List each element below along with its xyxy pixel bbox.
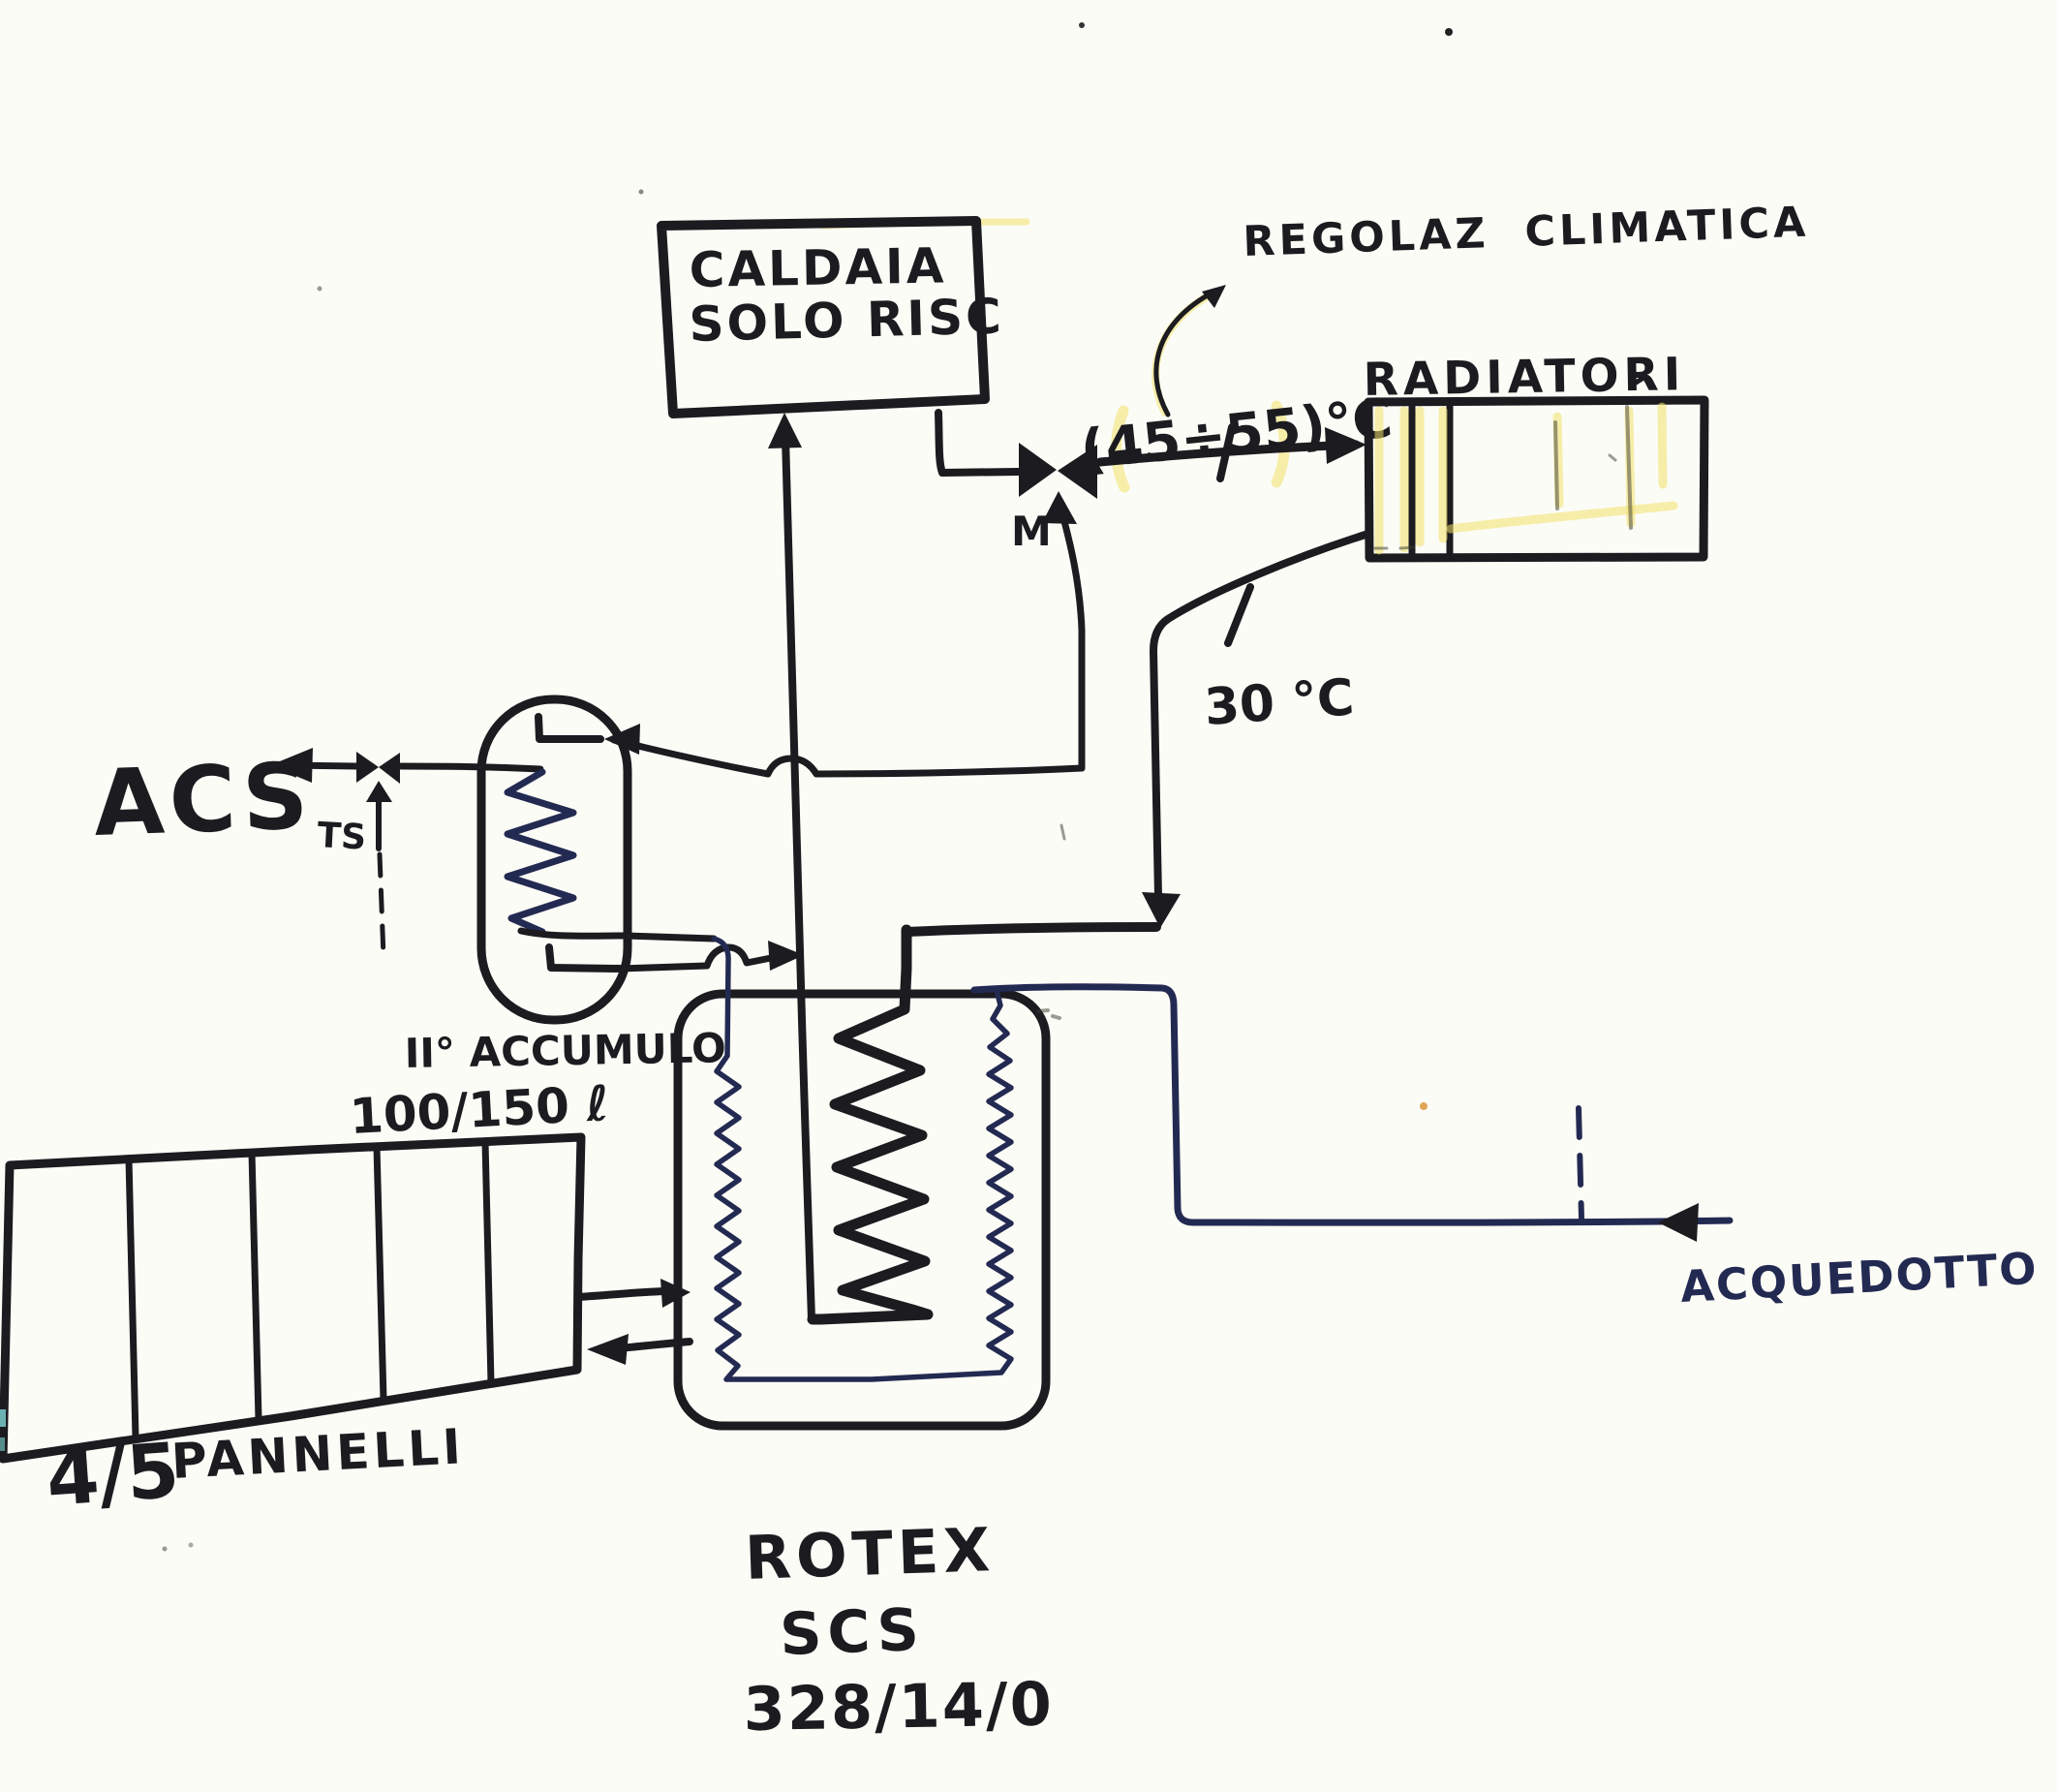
boiler-box: CALDAIA SOLO RISC: [661, 221, 1005, 414]
climate-regulation-label: REGOLAZ CLIMATICA: [1243, 199, 1810, 266]
ts-valve-left-triangle-icon: [356, 752, 379, 783]
arrow-tank-to-panel-icon: [587, 1334, 629, 1365]
storage-coil: [507, 772, 573, 932]
arrow-up-into-boiler-icon: [768, 413, 802, 448]
radiator-box: RADIATORI: [1363, 348, 1704, 558]
ts-label: TS: [317, 816, 368, 858]
return-to-coil-pipe: [906, 927, 1156, 932]
panels-count-label: 4/5: [44, 1428, 182, 1524]
solar-panels: 4/5 PANNELLI: [3, 1137, 581, 1524]
storage-top-inlet-stub: [538, 717, 600, 739]
tank-label-line2: SCS: [779, 1596, 926, 1669]
acs-label: ACS: [92, 744, 315, 857]
cold-water-pipe: ACQUEDOTTO: [974, 987, 2040, 1313]
radiators-label: RADIATORI: [1363, 348, 1685, 407]
aqueduct-label: ACQUEDOTTO: [1679, 1243, 2040, 1313]
boiler-return-pipe: [768, 413, 812, 1319]
boiler-supply-pipe: [938, 413, 1018, 473]
aqueduct-dashed-line: [1579, 1108, 1581, 1219]
rotex-tank: ROTEX SCS 328/14/0: [678, 930, 1054, 1745]
boiler-label-line2: SOLO RISC: [689, 288, 1005, 352]
arrow-from-aqueduct-icon: [1658, 1203, 1699, 1242]
tank-label-line3: 328/14/0: [743, 1668, 1054, 1745]
ts-valve-right-triangle-icon: [379, 753, 400, 784]
schematic-canvas: CALDAIA SOLO RISC M REGOLAZ CLIMATICA (4…: [0, 0, 2057, 1792]
mixing-valve-label: M: [1011, 508, 1052, 555]
tank-central-coil: [813, 930, 928, 1319]
tank-label-line1: ROTEX: [744, 1514, 996, 1593]
ts-valve-bottom-triangle-icon: [366, 781, 392, 802]
valve-left-triangle-icon: [1019, 443, 1057, 497]
boiler-label-line1: CALDAIA: [689, 237, 947, 298]
storage-bottom-outlet-stub: [549, 947, 620, 969]
scanned-hand-drawn-schematic: CALDAIA SOLO RISC M REGOLAZ CLIMATICA (4…: [0, 0, 2057, 1792]
return-tick-mark: [1228, 587, 1250, 643]
storage-return-pipe: [620, 941, 804, 971]
radiator-return-pipe: 30 °C: [1142, 534, 1368, 928]
return-temp-label: 30 °C: [1203, 668, 1356, 737]
dhw-outlet: ACS TS: [92, 744, 540, 957]
supply-temp-label: (45÷55)°C: [1078, 387, 1396, 482]
ts-sensor-dashed-line: [380, 854, 384, 957]
coil-to-jacket-pipe: [521, 931, 714, 939]
